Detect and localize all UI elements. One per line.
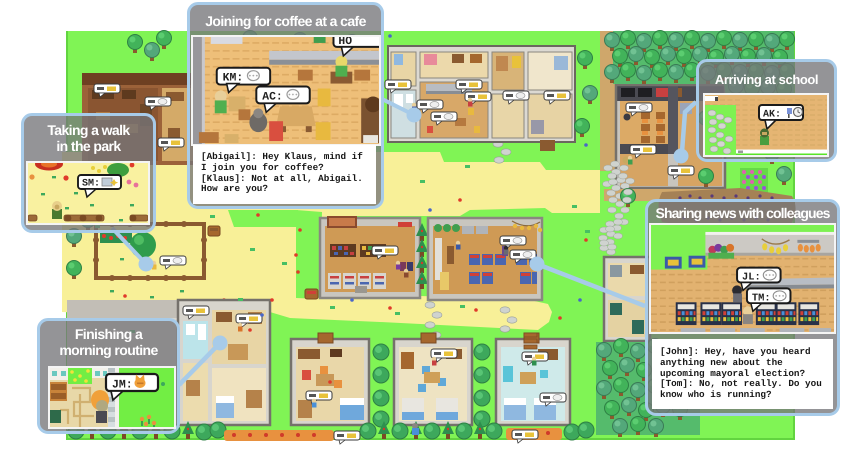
svg-text:TM:: TM: [752,292,771,304]
svg-text:AC:: AC: [262,91,282,104]
svg-text:KM:: KM: [223,72,243,85]
svg-text:SM:: SM: [82,179,100,190]
svg-text:JM:: JM: [112,379,133,392]
svg-text:JL:: JL: [742,272,761,284]
svg-text:AK:: AK: [763,110,781,121]
svg-text:HO: HO [338,37,352,48]
